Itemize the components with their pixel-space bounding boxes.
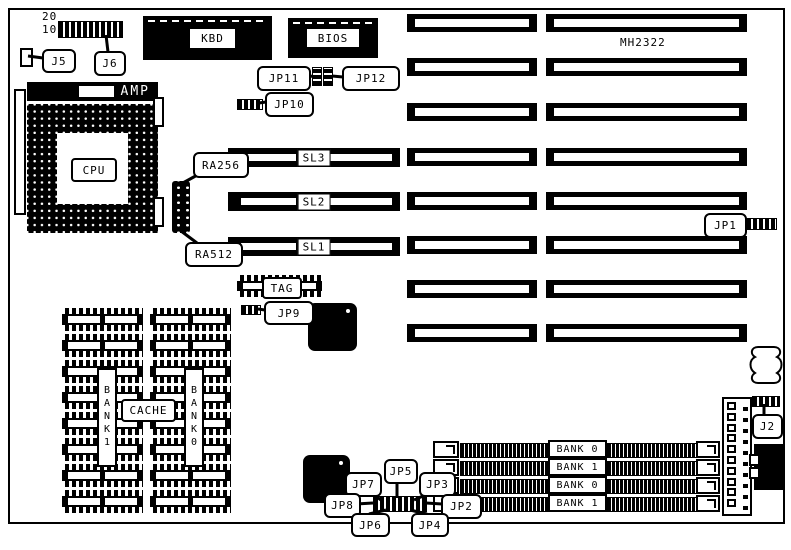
jp12-callout: JP12 xyxy=(342,66,400,91)
jp5-callout: JP5 xyxy=(384,459,418,484)
motherboard-diagram: 20 10 J5 J6 KBD BIOS JP11 JP12 JP10 AMP … xyxy=(0,0,791,550)
j5-callout: J5 xyxy=(42,49,76,73)
jp4-callout: JP4 xyxy=(411,513,449,537)
ra256-callout: RA256 xyxy=(193,152,249,178)
jp9-callout: JP9 xyxy=(264,301,314,325)
jp6-callout: JP6 xyxy=(351,513,390,537)
jp1-callout: JP1 xyxy=(704,213,747,238)
jp10-callout: JP10 xyxy=(265,92,314,117)
jp11-callout: JP11 xyxy=(257,66,311,91)
j6-callout: J6 xyxy=(94,51,126,76)
j2-callout: J2 xyxy=(752,414,783,439)
ra512-callout: RA512 xyxy=(185,242,243,267)
